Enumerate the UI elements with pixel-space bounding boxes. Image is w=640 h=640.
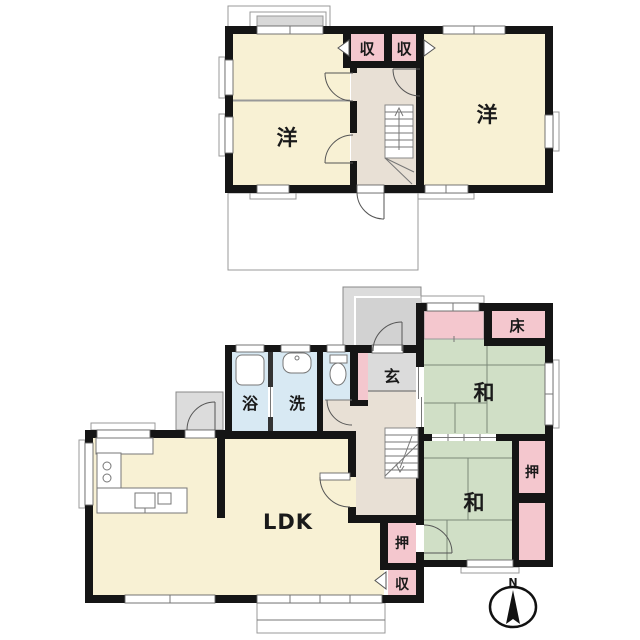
room-label-closet-right: 収: [396, 40, 412, 58]
floor-plan-page: 洋 洋 収 収: [0, 0, 640, 640]
room-label-tokonoma: 床: [509, 317, 525, 335]
roof-terrace-outline: [228, 193, 418, 270]
toilet-fixture: [330, 363, 346, 385]
room-label-ldk: LDK: [263, 510, 313, 534]
room-label-oshiire-east: 押: [525, 464, 539, 481]
room-label-western-left: 洋: [277, 126, 298, 150]
bath-wash-partition: [268, 352, 273, 432]
room-label-wash: 洗: [289, 394, 305, 413]
room-label-entrance: 玄: [384, 367, 400, 386]
kitchen-counter-top: [96, 438, 153, 454]
oshiire-lower: [519, 503, 545, 560]
room-label-japanese-north: 和: [474, 381, 495, 405]
room-label-storage-hall: 収: [395, 576, 410, 593]
room-label-oshiire-hall: 押: [395, 535, 409, 552]
entrance-porch: [343, 287, 421, 351]
first-floor-plan: LDK 浴 洗 玄 和 和 床 押 押 収: [79, 287, 559, 633]
compass: N: [490, 576, 536, 627]
back-door-porch: [176, 392, 223, 430]
kitchen-island: [97, 488, 187, 513]
room-label-western-right: 洋: [477, 103, 498, 127]
room-label-japanese-south: 和: [464, 491, 485, 515]
compass-north-label: N: [508, 576, 517, 589]
oshiire-north: [424, 311, 484, 339]
bathtub: [236, 355, 264, 385]
balcony-outline: [228, 6, 330, 28]
compass-needle: [506, 590, 520, 624]
second-floor-plan: 洋 洋 収 収: [219, 6, 559, 270]
room-label-bath: 浴: [242, 394, 259, 413]
room-label-closet-left: 収: [359, 40, 375, 58]
stove-unit: [97, 453, 121, 488]
floor-plan-drawing: 洋 洋 収 収: [0, 0, 640, 640]
room-western-left: [233, 34, 350, 185]
toilet-tank: [330, 355, 347, 363]
terrace-outline: [257, 603, 385, 633]
shoe-cabinet: [358, 352, 368, 400]
stairs-1f: [385, 428, 418, 478]
hallway-entry-step: [368, 390, 416, 405]
